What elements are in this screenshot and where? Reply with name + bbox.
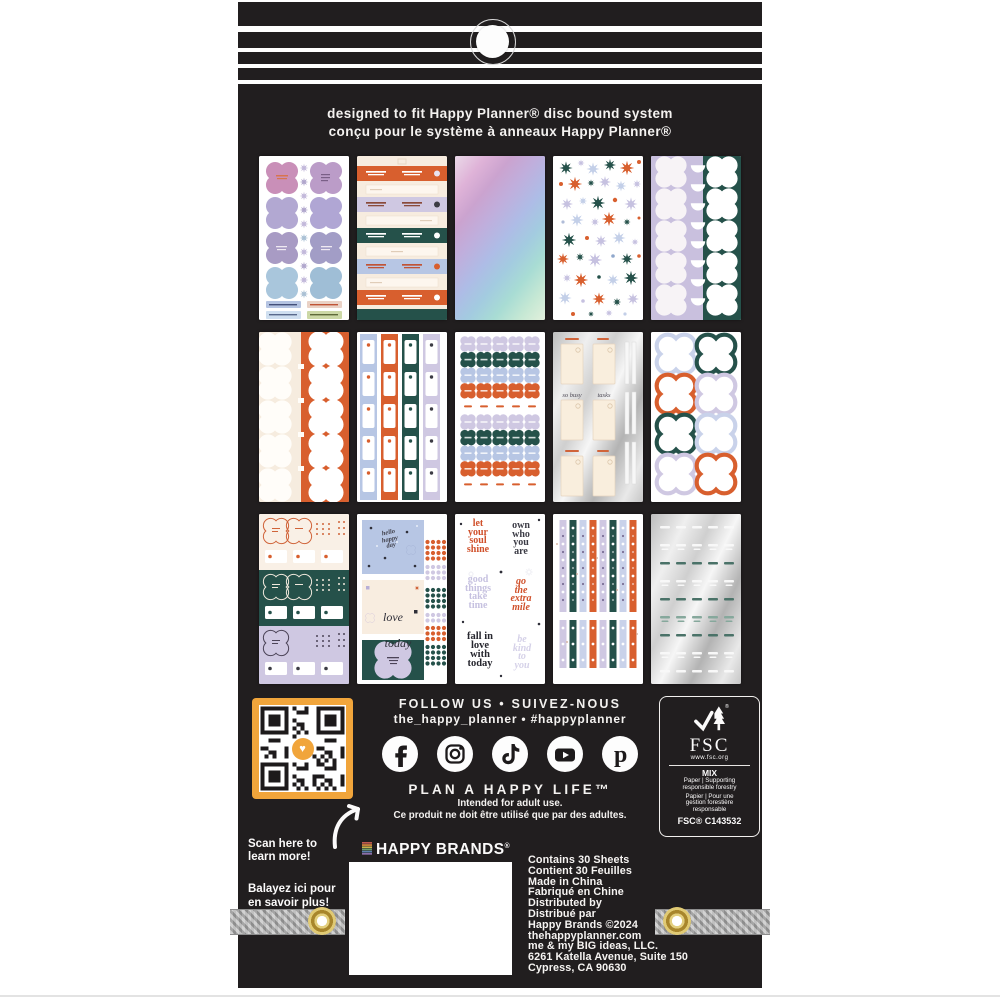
happy-brands-logo: HAPPY BRANDS® xyxy=(346,841,526,859)
sticker-sheet-flowers xyxy=(553,156,643,320)
heart-icon: ♥ xyxy=(292,738,314,760)
scan-text-fr: Balayez ici pour en savoir plus! xyxy=(248,883,336,910)
brand-reg-mark: ® xyxy=(504,843,510,850)
foil-list-caption: tasks xyxy=(598,392,611,399)
word-art-sticker: fall in love with today xyxy=(457,632,503,668)
fsc-text-fr: Papier | Pour une gestion forestière res… xyxy=(660,794,759,814)
sticker-sheet-band-sampler xyxy=(259,514,349,684)
info-line: Contient 30 Feuilles xyxy=(528,866,688,877)
word-art-sticker: go the extra mile xyxy=(501,578,541,612)
sticker-sheet-foil-lists: so busy tasks xyxy=(553,332,643,502)
fsc-cert-number: FSC® C143532 xyxy=(660,816,759,827)
brand-name: HAPPY BRANDS xyxy=(376,841,505,858)
fsc-tree-icon: ® xyxy=(688,702,732,732)
social-handles-line: the_happy_planner • #happyplanner xyxy=(350,712,670,726)
sticker-sheet-quote-blocks: hello happy day love today xyxy=(357,514,447,684)
pinterest-icon: p xyxy=(602,736,638,772)
word-art-sticker: be kind to you xyxy=(503,636,541,670)
youtube-icon xyxy=(547,736,583,772)
follow-us-line: FOLLOW US • SUIVEZ-NOUS xyxy=(350,697,670,711)
sticker-sheet-foil-words xyxy=(651,514,741,684)
hang-hole xyxy=(476,25,509,58)
love-word: love xyxy=(383,610,403,624)
instagram-icon xyxy=(437,736,473,772)
divider xyxy=(669,765,750,766)
product-photo-page: { "colors": { "package_black": "#211e1f"… xyxy=(0,0,1000,1000)
fsc-text-en: Paper | Supporting responsible forestry xyxy=(660,778,759,792)
sticker-sheet-tab-strips xyxy=(357,332,447,502)
facebook-icon xyxy=(382,736,418,772)
sticker-sheet-word-art: let your soul shine own who you are good… xyxy=(455,514,545,684)
svg-text:p: p xyxy=(614,742,627,768)
package-stripe xyxy=(238,68,762,80)
word-art-sticker: let your soul shine xyxy=(457,520,499,554)
sticker-sheet-clovers xyxy=(259,156,349,320)
sticker-sheet-holographic xyxy=(455,156,545,320)
happy-brands-stripes-icon xyxy=(362,842,373,855)
qr-code: ♥ xyxy=(252,698,353,799)
header-line-fr: conçu pour le système à anneaux Happy Pl… xyxy=(238,124,762,139)
sticker-sheet-grid: so busy tasks xyxy=(259,156,741,684)
sticker-sheet-clover-split xyxy=(259,332,349,502)
tiktok-icon xyxy=(492,736,528,772)
fsc-label: ® FSC www.fsc.org MIX Paper | Supporting… xyxy=(659,696,760,837)
word-art-sticker: good things take time xyxy=(457,576,499,610)
sticker-pack-package: designed to fit Happy Planner® disc boun… xyxy=(238,0,762,988)
fsc-acronym: FSC xyxy=(660,737,759,755)
sticker-sheet-washi-strips xyxy=(553,514,643,684)
sticker-sheet-mini-labels xyxy=(455,332,545,502)
love-today-sticker: love today xyxy=(367,598,419,650)
word-art-sticker: own who you are xyxy=(501,522,541,556)
barcode-area xyxy=(349,862,512,975)
scan-text-en: Scan here to learn more! xyxy=(248,838,336,865)
grommet-left xyxy=(308,907,336,935)
svg-text:®: ® xyxy=(725,703,729,710)
grommet-right xyxy=(663,907,691,935)
fsc-url: www.fsc.org xyxy=(660,755,759,762)
info-line: Cypress, CA 90630 xyxy=(528,963,688,974)
header-line-en: designed to fit Happy Planner® disc boun… xyxy=(238,106,762,121)
foil-list-caption: so busy xyxy=(562,392,581,399)
social-icons-row: p xyxy=(382,736,638,772)
adult-use-en: Intended for adult use. xyxy=(350,798,670,809)
adult-use-fr: Ce produit ne doit être utilisé que par … xyxy=(350,810,670,821)
sticker-sheet-banners xyxy=(357,156,447,320)
tagline: PLAN A HAPPY LIFE™ xyxy=(350,782,670,797)
sticker-sheet-clover-outlines xyxy=(651,332,741,502)
sticker-sheet-clover-columns xyxy=(651,156,741,320)
surface-edge-line xyxy=(0,995,1000,997)
today-word: today xyxy=(385,636,412,650)
